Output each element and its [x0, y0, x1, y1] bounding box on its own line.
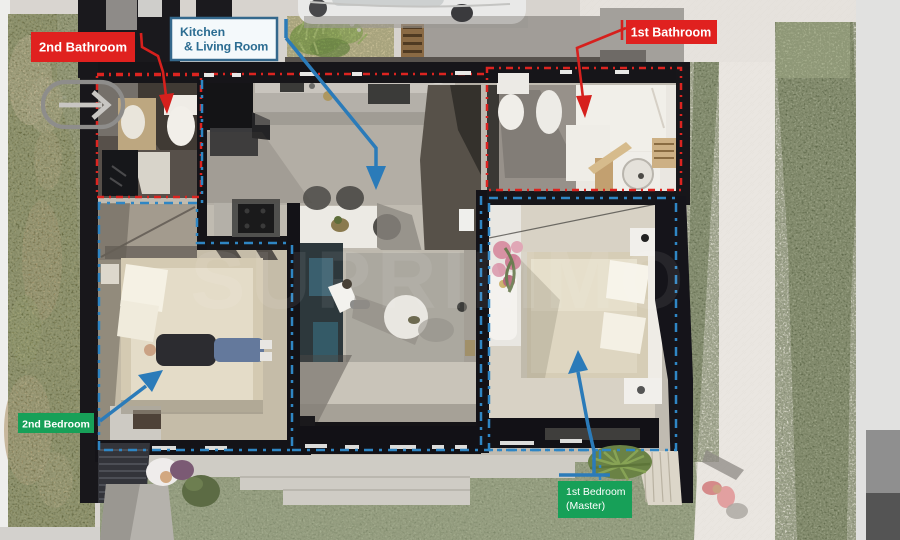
- svg-text:2nd Bedroom: 2nd Bedroom: [22, 419, 90, 431]
- svg-text:2nd Bathroom: 2nd Bathroom: [39, 40, 127, 55]
- svg-text:SUPRIMMO: SUPRIMMO: [191, 235, 690, 326]
- svg-text:& Living Room: & Living Room: [184, 40, 268, 54]
- svg-text:Kitchen: Kitchen: [180, 25, 225, 39]
- svg-text:1st Bathroom: 1st Bathroom: [631, 26, 712, 40]
- svg-text:(Master): (Master): [566, 500, 605, 512]
- svg-text:1st Bedroom: 1st Bedroom: [566, 486, 626, 498]
